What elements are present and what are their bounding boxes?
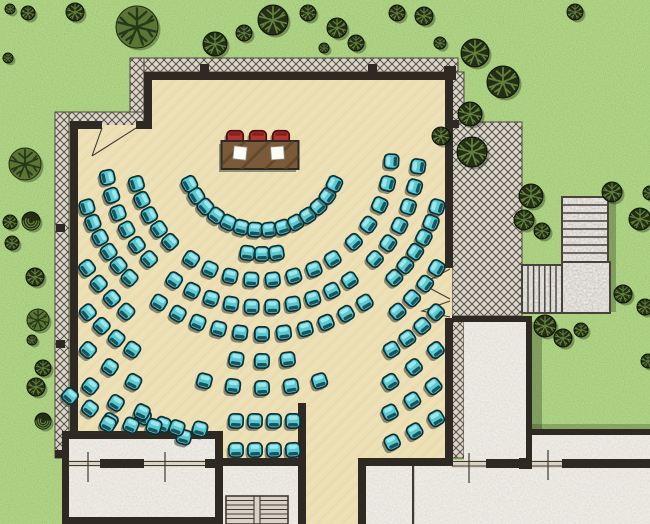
- left-building: [69, 439, 215, 517]
- guest-chair: [284, 414, 301, 431]
- wall-divider: [215, 431, 223, 524]
- wall-right-lower: [445, 318, 453, 466]
- wall-hall-bottom-right: [358, 458, 452, 466]
- wall-funnel-right: [358, 458, 366, 524]
- guest-chair: [245, 414, 262, 431]
- wall-pier-6: [444, 66, 456, 74]
- wall-pier-3: [56, 224, 65, 232]
- wall-corridor-top: [452, 316, 532, 322]
- guest-chair: [263, 300, 280, 317]
- floor-plan-canvas: [0, 0, 650, 524]
- wall-step-right: [136, 121, 152, 129]
- guest-chair: [253, 354, 270, 371]
- bottom-right-plaza: [366, 466, 650, 524]
- wall-top: [144, 72, 456, 80]
- wall-right-upper: [445, 72, 453, 268]
- wall-corridor-right: [526, 316, 532, 462]
- wall-pier-7: [519, 458, 532, 469]
- wall-step-vertical: [144, 72, 152, 128]
- table-paper: [233, 146, 247, 160]
- guest-chair: [265, 414, 282, 431]
- plaza-partition-wall: [412, 466, 414, 524]
- wall-pier-2: [368, 64, 377, 72]
- interior-staircase: [226, 496, 288, 524]
- wall-terrace-top: [532, 429, 650, 435]
- guest-chair: [253, 247, 270, 264]
- right-corridor-room: [464, 321, 526, 462]
- table-paper: [271, 146, 285, 160]
- wall-pier-5: [450, 120, 459, 128]
- guest-chair: [253, 327, 270, 344]
- walkway-left-end-cap: [55, 450, 68, 458]
- guest-chair: [227, 443, 244, 460]
- guest-chair: [242, 300, 259, 317]
- right-terrace: [532, 433, 650, 462]
- walkway-top: [130, 58, 458, 72]
- stair-landing: [562, 262, 610, 313]
- wall-pier-1: [200, 64, 209, 72]
- wall-pier-4: [56, 340, 65, 348]
- wall-building-bottom: [62, 517, 222, 524]
